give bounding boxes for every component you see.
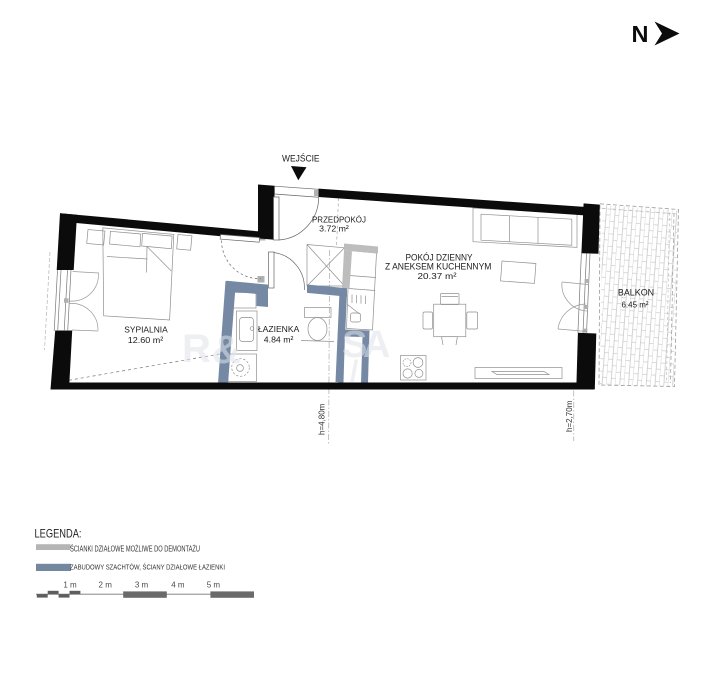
svg-text:4.84 m²: 4.84 m² [264, 335, 294, 345]
svg-text:h=2,70m: h=2,70m [565, 400, 574, 432]
svg-text:ZABUDOWY SZACHTÓW, ŚCIANY DZIA: ZABUDOWY SZACHTÓW, ŚCIANY DZIAŁOWE ŁAZIE… [70, 562, 225, 571]
svg-text:5 m: 5 m [207, 581, 221, 590]
svg-text:WEJŚCIE: WEJŚCIE [282, 152, 320, 163]
svg-text:3.72 m²: 3.72 m² [319, 224, 349, 234]
svg-text:1 m: 1 m [63, 581, 77, 590]
svg-text:BALKON: BALKON [618, 288, 654, 298]
svg-text:SYPIALNIA: SYPIALNIA [124, 324, 168, 334]
svg-text:R: R [182, 327, 211, 371]
svg-text:20.37 m²: 20.37 m² [418, 271, 457, 281]
svg-text:A: A [363, 324, 390, 366]
svg-text:6.45 m²: 6.45 m² [622, 300, 649, 310]
svg-text:N: N [632, 21, 649, 47]
svg-text:4 m: 4 m [171, 581, 185, 590]
svg-text:ŁAZIENKA: ŁAZIENKA [258, 324, 300, 334]
svg-text:3 m: 3 m [135, 581, 149, 590]
svg-text:LEGENDA:: LEGENDA: [35, 526, 82, 540]
svg-text:h=4,80m: h=4,80m [318, 403, 327, 435]
svg-text:12.60 m²: 12.60 m² [128, 335, 164, 345]
svg-text:&: & [212, 328, 241, 372]
svg-text:2 m: 2 m [99, 581, 113, 590]
svg-text:/: / [350, 355, 359, 388]
svg-text:ŚCIANKI DZIAŁOWE MOŻLIWE DO DE: ŚCIANKI DZIAŁOWE MOŻLIWE DO DEMONTAŻU [70, 544, 200, 553]
